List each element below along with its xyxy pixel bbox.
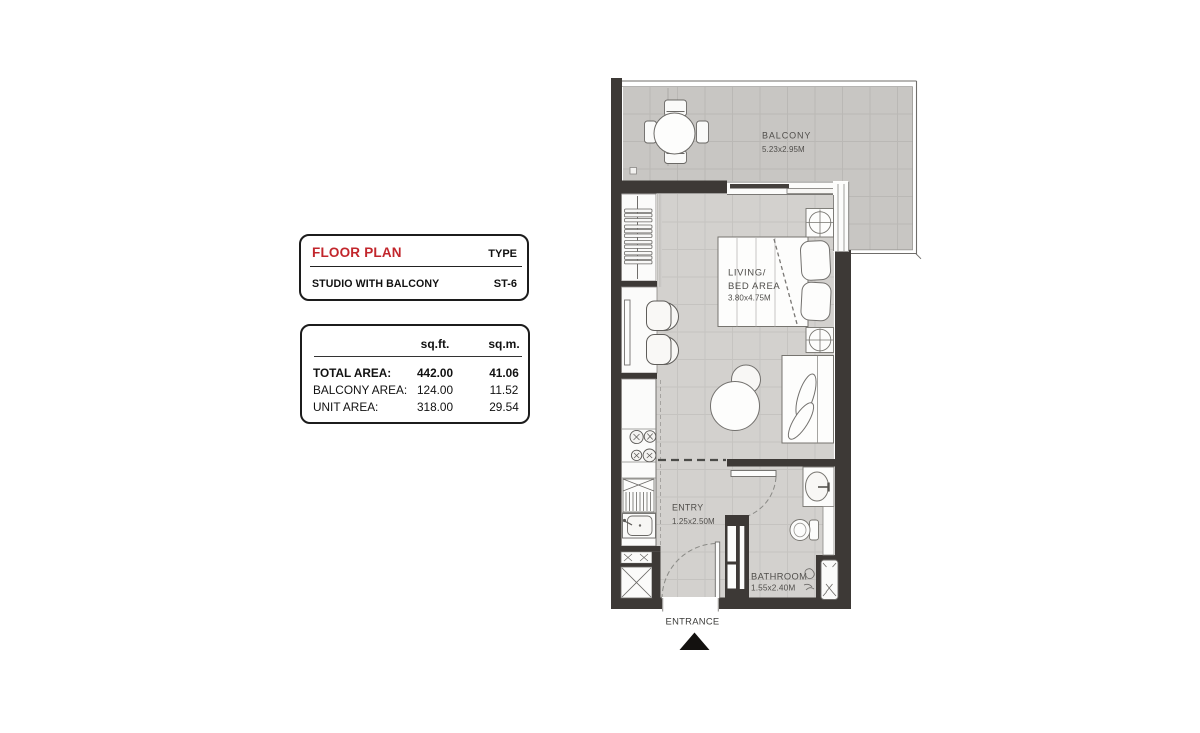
svg-text:ENTRANCE: ENTRANCE <box>666 616 720 627</box>
svg-text:BATHROOM: BATHROOM <box>751 572 807 582</box>
svg-text:ENTRY: ENTRY <box>672 503 703 513</box>
svg-text:3.80x4.75M: 3.80x4.75M <box>728 294 771 303</box>
svg-text:5.23x2.95M: 5.23x2.95M <box>762 145 805 154</box>
svg-text:BALCONY: BALCONY <box>762 131 811 141</box>
svg-text:BED AREA: BED AREA <box>728 281 780 292</box>
svg-text:1.55x2.40M: 1.55x2.40M <box>751 583 795 593</box>
svg-text:1.25x2.50M: 1.25x2.50M <box>672 517 715 526</box>
svg-text:LIVING/: LIVING/ <box>728 268 766 279</box>
